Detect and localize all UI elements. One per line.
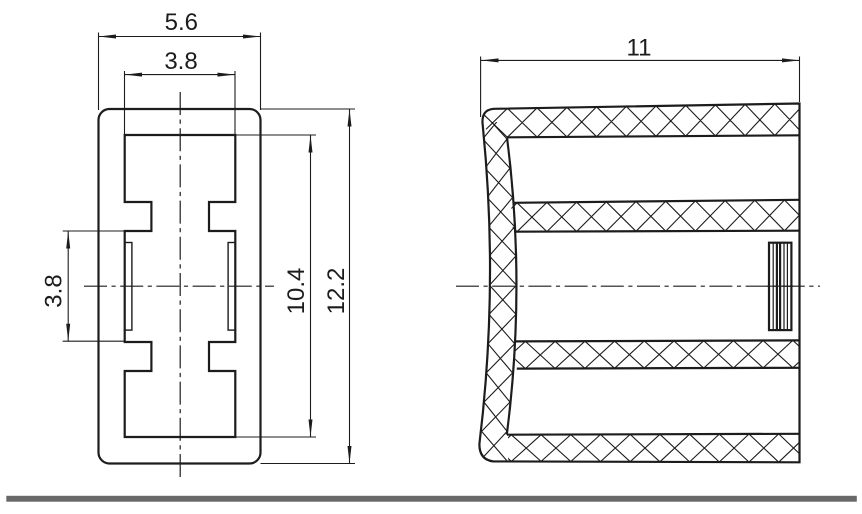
svg-text:11: 11 bbox=[627, 35, 652, 62]
svg-text:12.2: 12.2 bbox=[323, 268, 350, 315]
svg-text:5.6: 5.6 bbox=[165, 9, 198, 36]
svg-text:3.8: 3.8 bbox=[40, 274, 67, 307]
svg-text:3.8: 3.8 bbox=[164, 48, 197, 75]
svg-text:10.4: 10.4 bbox=[283, 268, 310, 315]
